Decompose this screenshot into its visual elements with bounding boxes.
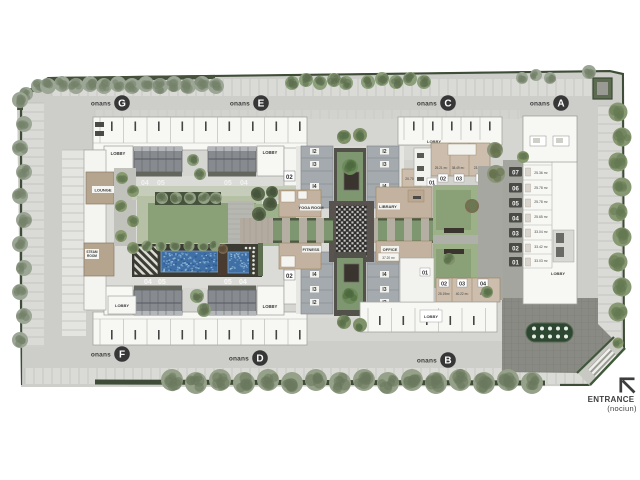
svg-text:onans: onans: [530, 101, 550, 108]
svg-text:I2: I2: [312, 149, 316, 155]
svg-text:I3: I3: [312, 287, 316, 293]
svg-text:LOUNGE: LOUNGE: [94, 188, 111, 193]
svg-text:05: 05: [224, 180, 232, 187]
svg-text:I4: I4: [312, 184, 316, 190]
svg-text:onans: onans: [417, 101, 437, 108]
svg-text:03: 03: [512, 231, 519, 237]
svg-text:LOBBY: LOBBY: [263, 150, 278, 155]
svg-text:25.65 m²: 25.65 m²: [534, 215, 548, 219]
svg-text:OFFICE: OFFICE: [383, 247, 398, 252]
svg-text:01: 01: [422, 271, 428, 277]
svg-text:LOBBY: LOBBY: [111, 151, 126, 156]
svg-text:05: 05: [224, 279, 232, 286]
svg-text:33.04 m²: 33.04 m²: [534, 230, 548, 234]
svg-text:04: 04: [240, 180, 248, 187]
svg-text:25.21 m²: 25.21 m²: [435, 166, 448, 170]
svg-text:G: G: [118, 99, 126, 110]
svg-text:onans: onans: [91, 352, 111, 359]
svg-text:02: 02: [512, 246, 519, 252]
svg-text:YOGA ROOM: YOGA ROOM: [298, 205, 324, 210]
svg-text:C: C: [444, 99, 451, 110]
svg-text:02: 02: [286, 175, 293, 181]
svg-text:I4: I4: [312, 272, 316, 278]
svg-text:04: 04: [141, 180, 149, 187]
svg-text:05: 05: [157, 180, 165, 187]
svg-text:02: 02: [286, 274, 293, 280]
svg-text:FITNESS: FITNESS: [303, 247, 320, 252]
svg-text:LIBRARY: LIBRARY: [379, 204, 397, 209]
svg-text:02: 02: [441, 282, 447, 288]
svg-text:B: B: [444, 356, 451, 367]
svg-text:25.19m²: 25.19m²: [438, 292, 450, 296]
svg-text:LOBBY: LOBBY: [115, 303, 129, 308]
svg-text:25.78 m²: 25.78 m²: [534, 200, 548, 204]
svg-text:E: E: [258, 99, 265, 110]
svg-text:I4: I4: [382, 272, 386, 278]
svg-text:onans: onans: [229, 356, 249, 363]
svg-text:ENTRANCE: ENTRANCE: [588, 395, 635, 404]
svg-text:03: 03: [456, 177, 462, 183]
svg-text:F: F: [119, 350, 125, 361]
svg-text:onans: onans: [230, 101, 250, 108]
svg-text:I2: I2: [382, 149, 386, 155]
svg-text:25.36 m²: 25.36 m²: [534, 171, 548, 175]
svg-text:37.20 m²: 37.20 m²: [382, 256, 395, 260]
svg-text:33.03 m²: 33.03 m²: [534, 259, 548, 263]
svg-text:LOBBY: LOBBY: [263, 304, 278, 309]
svg-text:I3: I3: [382, 287, 386, 293]
svg-text:40.22 m²: 40.22 m²: [456, 292, 469, 296]
svg-text:33.42 m²: 33.42 m²: [534, 245, 548, 249]
svg-text:I2: I2: [312, 300, 316, 306]
svg-text:onans: onans: [417, 358, 437, 365]
svg-text:03: 03: [459, 282, 465, 288]
svg-text:LOBBY: LOBBY: [551, 271, 565, 276]
svg-text:07: 07: [512, 170, 519, 176]
svg-text:LOBBY: LOBBY: [424, 314, 438, 319]
svg-text:38.49 m²: 38.49 m²: [452, 166, 465, 170]
svg-text:A: A: [557, 99, 564, 110]
svg-text:06: 06: [512, 186, 519, 192]
svg-text:04: 04: [512, 216, 519, 222]
svg-text:05: 05: [158, 279, 166, 286]
svg-text:(nociun): (nociun): [607, 404, 637, 413]
svg-text:05: 05: [512, 201, 519, 207]
svg-text:04: 04: [239, 279, 247, 286]
svg-text:D: D: [256, 354, 263, 365]
svg-text:ROOM: ROOM: [87, 254, 97, 258]
svg-text:I3: I3: [382, 162, 386, 168]
svg-text:25.78 m²: 25.78 m²: [534, 186, 548, 190]
svg-text:I3: I3: [312, 162, 316, 168]
svg-text:01: 01: [512, 260, 519, 266]
svg-text:04: 04: [144, 279, 152, 286]
svg-text:onans: onans: [91, 101, 111, 108]
svg-text:02: 02: [440, 177, 446, 183]
